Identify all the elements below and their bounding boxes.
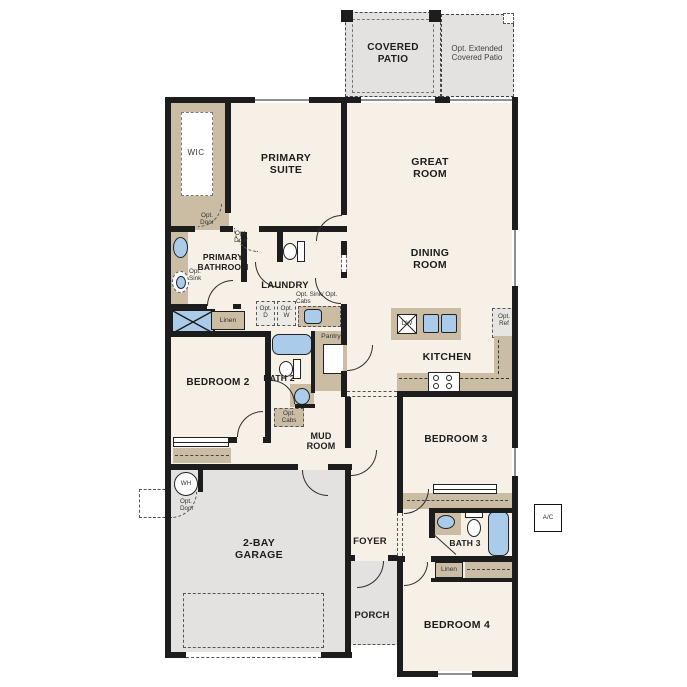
range-burner [446, 383, 452, 389]
ext-patio-notch [503, 13, 514, 24]
bedroom3-closet-doors [433, 484, 497, 494]
bedroom2-bottom-wall-b [263, 437, 271, 443]
primary-suite-label: PRIMARY SUITE [248, 152, 324, 176]
bedroom4-left-wall [397, 556, 403, 677]
primary-suite-window [255, 97, 309, 103]
bedroom2-bottom-wall-a [229, 437, 237, 443]
dining-right-window [512, 230, 518, 286]
opt-door-wic-label: Opt. Door [194, 212, 220, 226]
mud-room-label: MUD ROOM [298, 431, 344, 452]
kitchen-sink-right [441, 314, 457, 333]
mudroom-foyer-wall [345, 391, 351, 448]
porch-top-wall-a [345, 555, 355, 561]
linen-primary-label: Linen [211, 317, 245, 325]
bath3-top-wall [429, 508, 518, 513]
bath3-closet-dash [467, 569, 510, 570]
water-heater-label: WH [174, 480, 198, 487]
bedroom4-label: BEDROOM 4 [416, 619, 498, 631]
bath3-bottom-wall-b [431, 556, 518, 562]
bath-bottom-wall-a [171, 304, 207, 309]
bath2-tub [272, 334, 312, 355]
opt-door-suite-label: Opt. Door [228, 230, 254, 244]
spine-wall-c [341, 272, 347, 278]
wic-label: WIC [180, 148, 212, 157]
primary-toilet-bowl [283, 243, 297, 260]
suite-bath-wall-a [171, 226, 195, 232]
patio-post-right [429, 10, 441, 22]
porch-left-wall [345, 561, 351, 652]
linen3-bottom-wall [431, 578, 512, 582]
dining-top-window [450, 97, 512, 103]
bath3-tub [488, 511, 509, 556]
porch-label: PORCH [350, 611, 394, 622]
garage-label: 2-BAY GARAGE [220, 537, 298, 561]
bath3-sink [437, 515, 455, 529]
bedroom3-label: BEDROOM 3 [418, 434, 494, 446]
great-room-patio-door [361, 97, 435, 103]
bath3-label: BATH 3 [444, 539, 486, 549]
spine-cased-opening [341, 255, 347, 272]
garage-door-outline [183, 593, 324, 648]
porch-edge-dash [353, 644, 395, 645]
bedroom3-left-wall [397, 397, 403, 513]
ac-label: A/C [534, 514, 562, 521]
pantry-shelf [323, 344, 343, 374]
linen-bath3-label: Linen [435, 566, 463, 573]
opt-cabs-label: Opt. Cabs [275, 410, 303, 424]
opt-sink-cabs-label: Opt. Sink/ Opt. Cabs [296, 291, 342, 305]
bath3-toilet-bowl [467, 519, 481, 537]
bedroom2-closet-doors [173, 437, 229, 447]
kitchen-counter-dash-v [498, 340, 499, 374]
covered-patio-label: COVERED PATIO [353, 42, 433, 65]
kitchen-label: KITCHEN [418, 351, 476, 363]
bath2-sink [294, 388, 310, 405]
opt-d-label: Opt. D [257, 305, 274, 319]
patio-post-left [341, 10, 353, 22]
bath-bottom-wall-b [233, 304, 241, 309]
bedroom3-window [512, 448, 518, 476]
kitchen-bottom-wall [397, 391, 518, 397]
foyer-label: FOYER [348, 537, 392, 548]
exterior-wall-left [165, 97, 171, 658]
range-burner [433, 375, 439, 381]
opt-door-garage-label: Opt. Door [180, 498, 206, 512]
bath2-label: BATH 2 [262, 374, 296, 384]
garage-door-opening [186, 652, 321, 658]
great-room-label: GREAT ROOM [397, 156, 463, 180]
dining-room-label: DINING ROOM [397, 247, 463, 271]
range-burner [446, 375, 452, 381]
bedroom4-window [438, 671, 472, 677]
spine-wall-b [341, 241, 347, 255]
wc-nook-wall [277, 232, 283, 262]
wh-nook-stub [198, 470, 203, 492]
garage-top-wall-a [171, 464, 298, 470]
opt-w-label: Opt. W [278, 305, 295, 319]
laundry-opt-sink [304, 309, 322, 324]
bedroom2-closet-dash [175, 455, 229, 456]
opt-ref-label: Opt. Ref [493, 313, 515, 327]
bedroom2-label: BEDROOM 2 [180, 377, 256, 389]
dining-foyer-opening [347, 391, 397, 397]
exterior-wall-right [512, 97, 518, 677]
floor-plan: DW WH A/C [0, 0, 687, 687]
opt-sink-bowl [176, 276, 186, 289]
ext-patio-label: Opt. Extended Covered Patio [444, 44, 510, 62]
range-burner [433, 383, 439, 389]
dishwasher-label: DW [397, 320, 417, 327]
bath2-bottom-wall [295, 404, 315, 408]
spine-wall-a [341, 103, 347, 215]
opt-sink-label: Opt. Sink [189, 268, 213, 282]
wic-suite-wall [225, 103, 231, 213]
pantry-label: Pantry [315, 333, 347, 341]
porch-outside-cover [351, 645, 397, 677]
primary-toilet-tank [297, 241, 305, 262]
kitchen-sink-left [423, 314, 439, 333]
porch-top-wall-b [388, 555, 397, 561]
bath3-closet-shelf [465, 562, 512, 578]
hall-cased-opening [397, 513, 403, 556]
bedroom2-top-wall [171, 331, 271, 337]
